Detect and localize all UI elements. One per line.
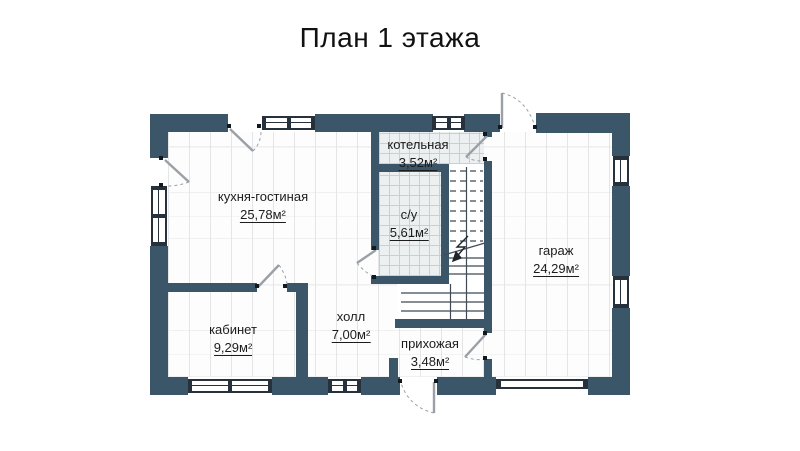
room-name: с/у (390, 206, 429, 224)
room-label-kitchen: кухня-гостиная 25,78м² (218, 188, 308, 224)
room-name: холл (332, 308, 371, 326)
room-area: 3,52м² (399, 155, 438, 171)
floor-plan: План 1 этажа (0, 0, 800, 451)
room-label-hall: холл 7,00м² (332, 308, 371, 344)
room-label-garage: гараж 24,29м² (533, 242, 579, 278)
room-name: гараж (533, 242, 579, 260)
room-name: котельная (387, 136, 448, 154)
stairs (401, 167, 485, 319)
room-area: 25,78м² (240, 207, 286, 223)
room-name: прихожая (401, 335, 459, 353)
room-area: 7,00м² (332, 327, 371, 343)
room-label-entry: прихожая 3,48м² (401, 335, 459, 371)
room-area: 3,48м² (411, 354, 450, 370)
room-label-boiler: котельная 3,52м² (387, 136, 448, 172)
room-label-bathroom: с/у 5,61м² (390, 206, 429, 242)
room-name: кабинет (209, 321, 257, 339)
room-area: 5,61м² (390, 225, 429, 241)
room-area: 9,29м² (214, 340, 253, 356)
room-name: кухня-гостиная (218, 188, 308, 206)
room-label-office: кабинет 9,29м² (209, 321, 257, 357)
room-area: 24,29м² (533, 261, 579, 277)
door-swings (165, 93, 535, 413)
